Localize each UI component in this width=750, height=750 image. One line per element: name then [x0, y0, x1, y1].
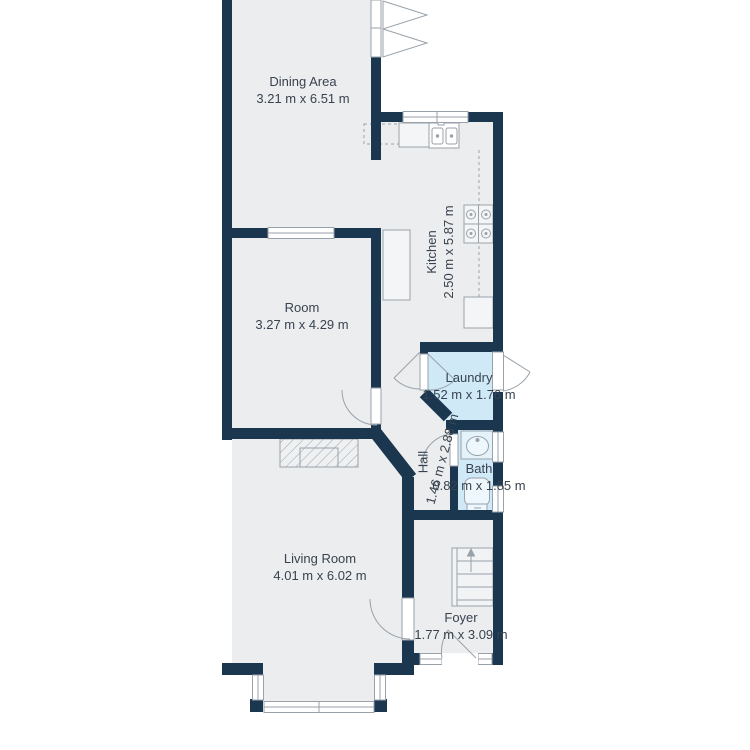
room-name: Laundry: [422, 369, 515, 386]
floorplan-page: Dining Area 3.21 m x 6.51 m Kitchen 2.50…: [0, 0, 750, 750]
room-dims: 3.21 m x 6.51 m: [256, 90, 349, 107]
window-icon: [375, 675, 386, 700]
window-icon: [420, 654, 442, 665]
door-swing-icon: [383, 1, 427, 57]
room-dims: 3.27 m x 4.29 m: [255, 316, 348, 333]
room-name: Foyer: [414, 609, 507, 626]
room-label-living: Living Room 4.01 m x 6.02 m: [273, 550, 366, 584]
room-name: Bath: [432, 460, 525, 477]
door-panel: [371, 388, 381, 424]
room-name: Living Room: [273, 550, 366, 567]
room-label-room: Room 3.27 m x 4.29 m: [255, 299, 348, 333]
room-dims: 1.52 m x 1.76 m: [422, 386, 515, 403]
stairs-icon: [452, 548, 493, 606]
room-label-kitchen: Kitchen 2.50 m x 5.87 m: [423, 205, 457, 298]
kitchen-sink-icon: [429, 120, 459, 148]
room-label-foyer: Foyer 1.77 m x 3.09 m: [414, 609, 507, 643]
window-icon: [253, 675, 264, 700]
window-icon: [268, 228, 334, 239]
bath-sink-icon: [461, 431, 494, 459]
room-dims: 0.82 m x 1.85 m: [432, 477, 525, 494]
room-dims: 4.01 m x 6.02 m: [273, 567, 366, 584]
window-icon: [478, 654, 492, 665]
window-icon: [264, 702, 374, 713]
fireplace-icon: [280, 439, 358, 467]
window-icon: [403, 112, 468, 123]
window-icon: [493, 432, 504, 462]
room-name: Kitchen: [423, 205, 440, 298]
room-label-dining: Dining Area 3.21 m x 6.51 m: [256, 73, 349, 107]
room-label-bath: Bath 0.82 m x 1.85 m: [432, 460, 525, 494]
room-dims: 1.77 m x 3.09 m: [414, 626, 507, 643]
door-panel: [402, 598, 414, 640]
door-panel: [371, 0, 381, 57]
floorplan-drawing: [0, 0, 750, 750]
room-label-laundry: Laundry 1.52 m x 1.76 m: [422, 369, 515, 403]
room-label-hall: Hall: [415, 451, 432, 473]
stove-icon: [464, 205, 493, 243]
room-dims: 2.50 m x 5.87 m: [440, 205, 457, 298]
room-name: Dining Area: [256, 73, 349, 90]
room-name: Hall: [415, 451, 432, 473]
room-name: Room: [255, 299, 348, 316]
